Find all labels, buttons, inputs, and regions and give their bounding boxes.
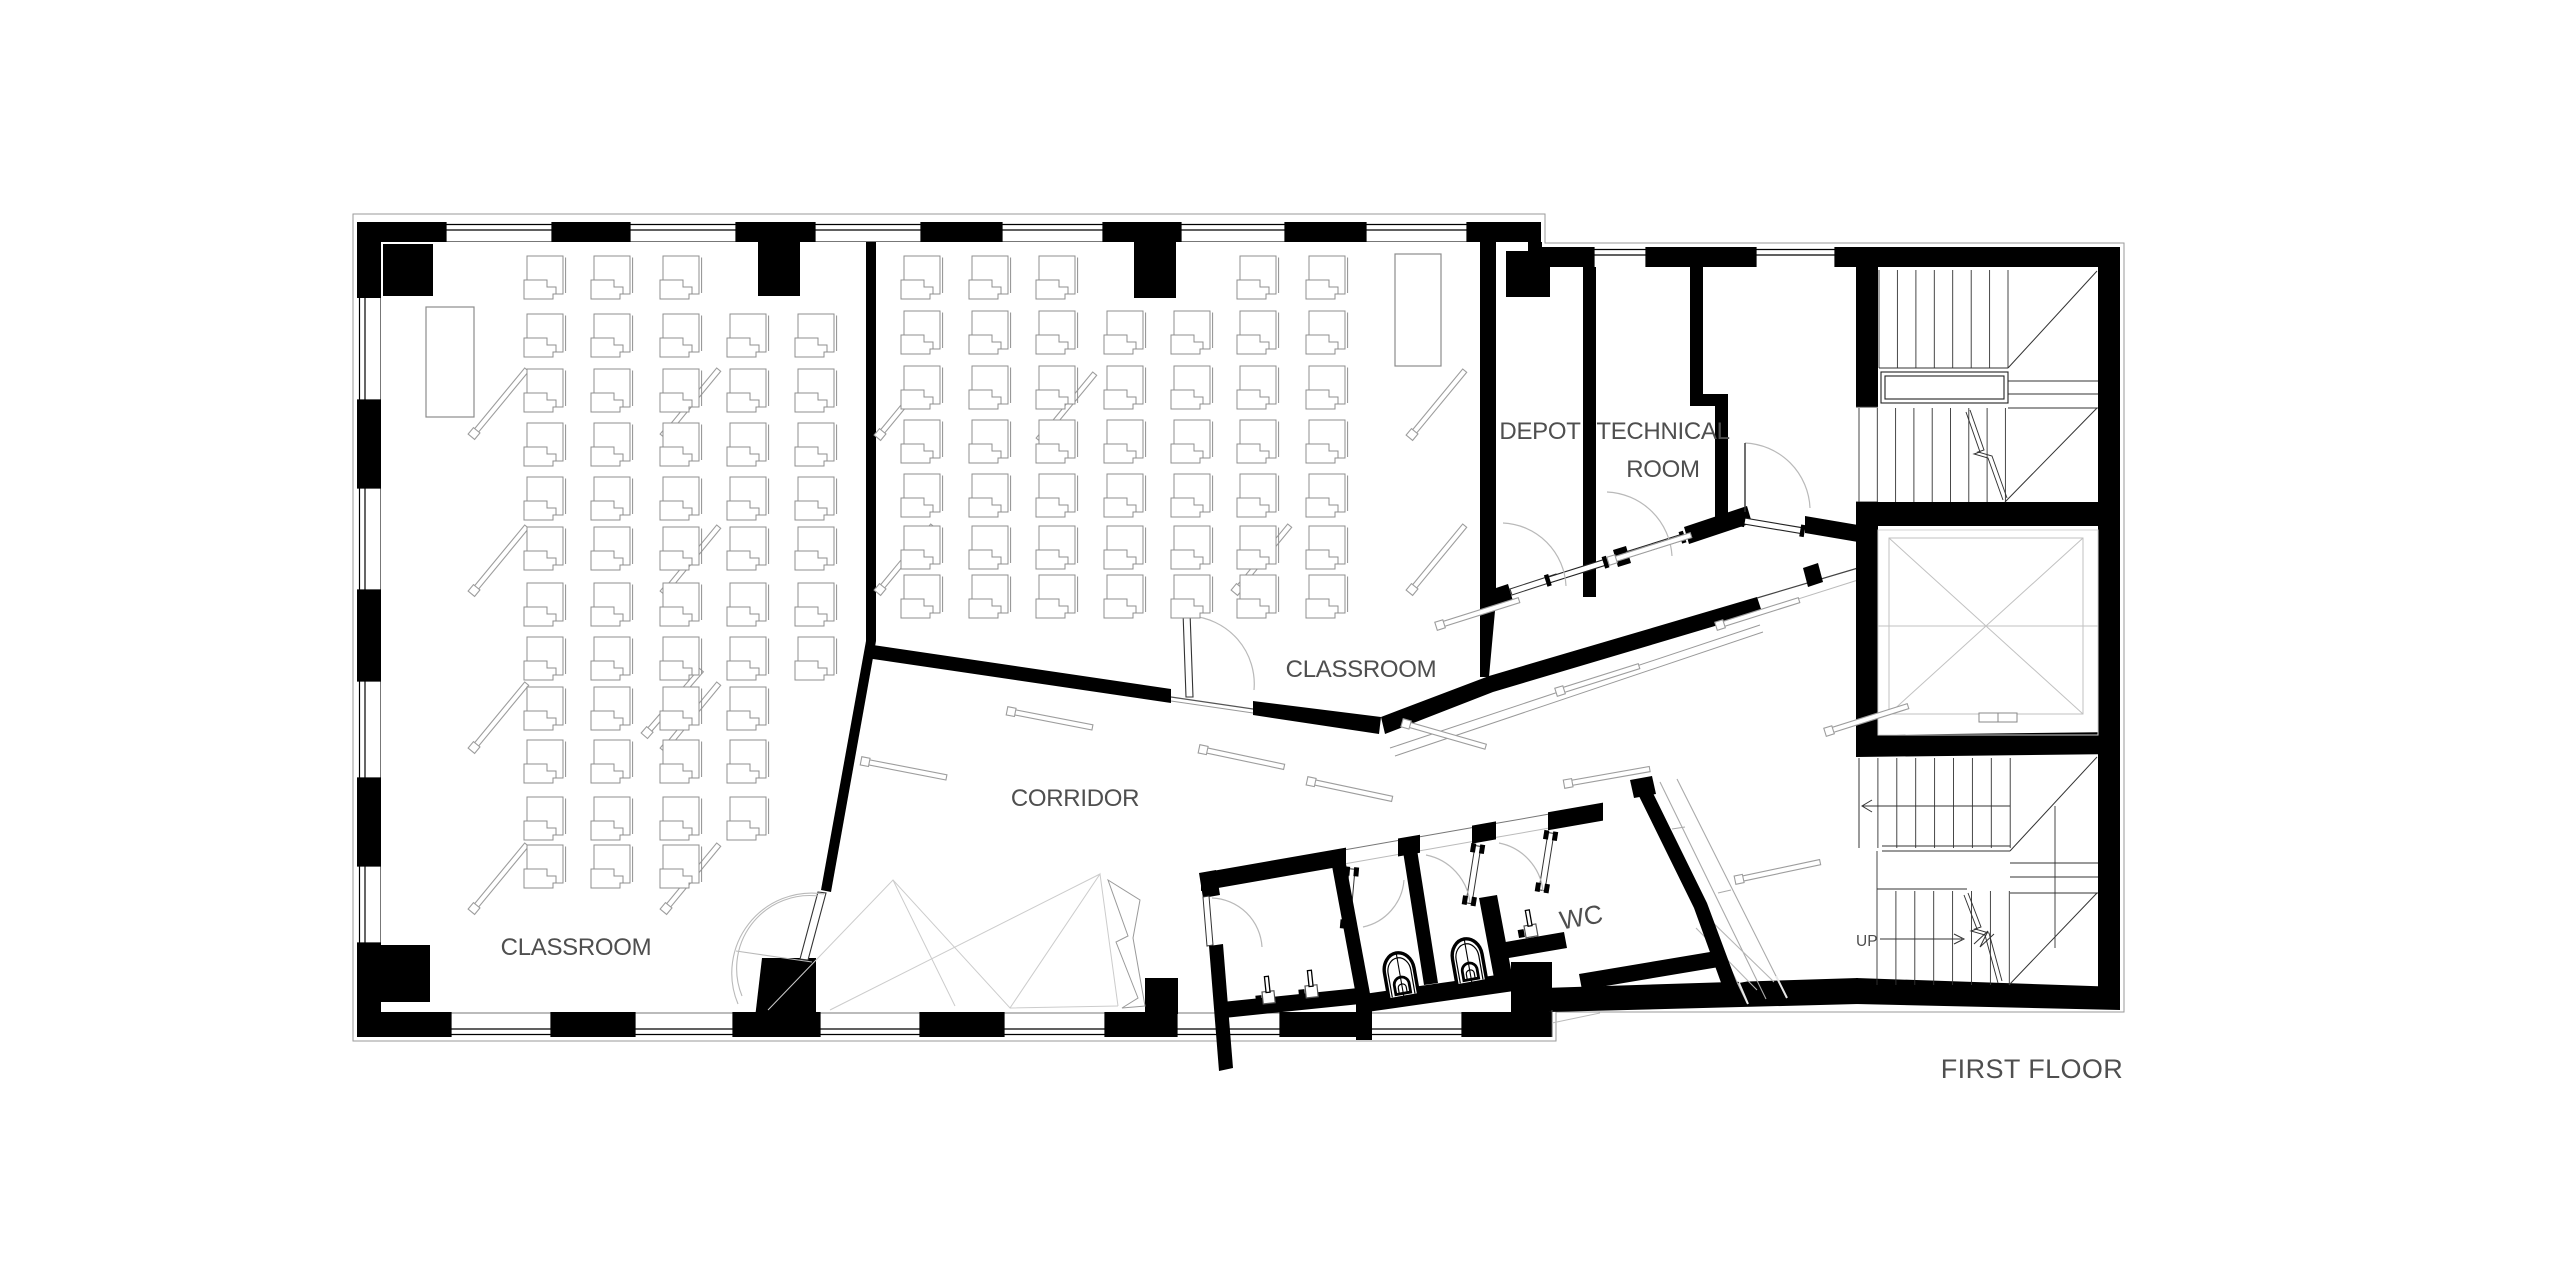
- svg-text:CLASSROOM: CLASSROOM: [501, 934, 652, 961]
- svg-text:ROOM: ROOM: [1626, 456, 1699, 483]
- svg-text:FIRST FLOOR: FIRST FLOOR: [1941, 1054, 2123, 1084]
- svg-text:DEPOT: DEPOT: [1499, 418, 1581, 445]
- svg-text:CLASSROOM: CLASSROOM: [1286, 656, 1437, 683]
- svg-text:TECHNICAL: TECHNICAL: [1596, 418, 1729, 445]
- svg-text:WC: WC: [1557, 898, 1605, 935]
- svg-text:CORRIDOR: CORRIDOR: [1011, 785, 1139, 812]
- svg-text:UP: UP: [1856, 933, 1878, 950]
